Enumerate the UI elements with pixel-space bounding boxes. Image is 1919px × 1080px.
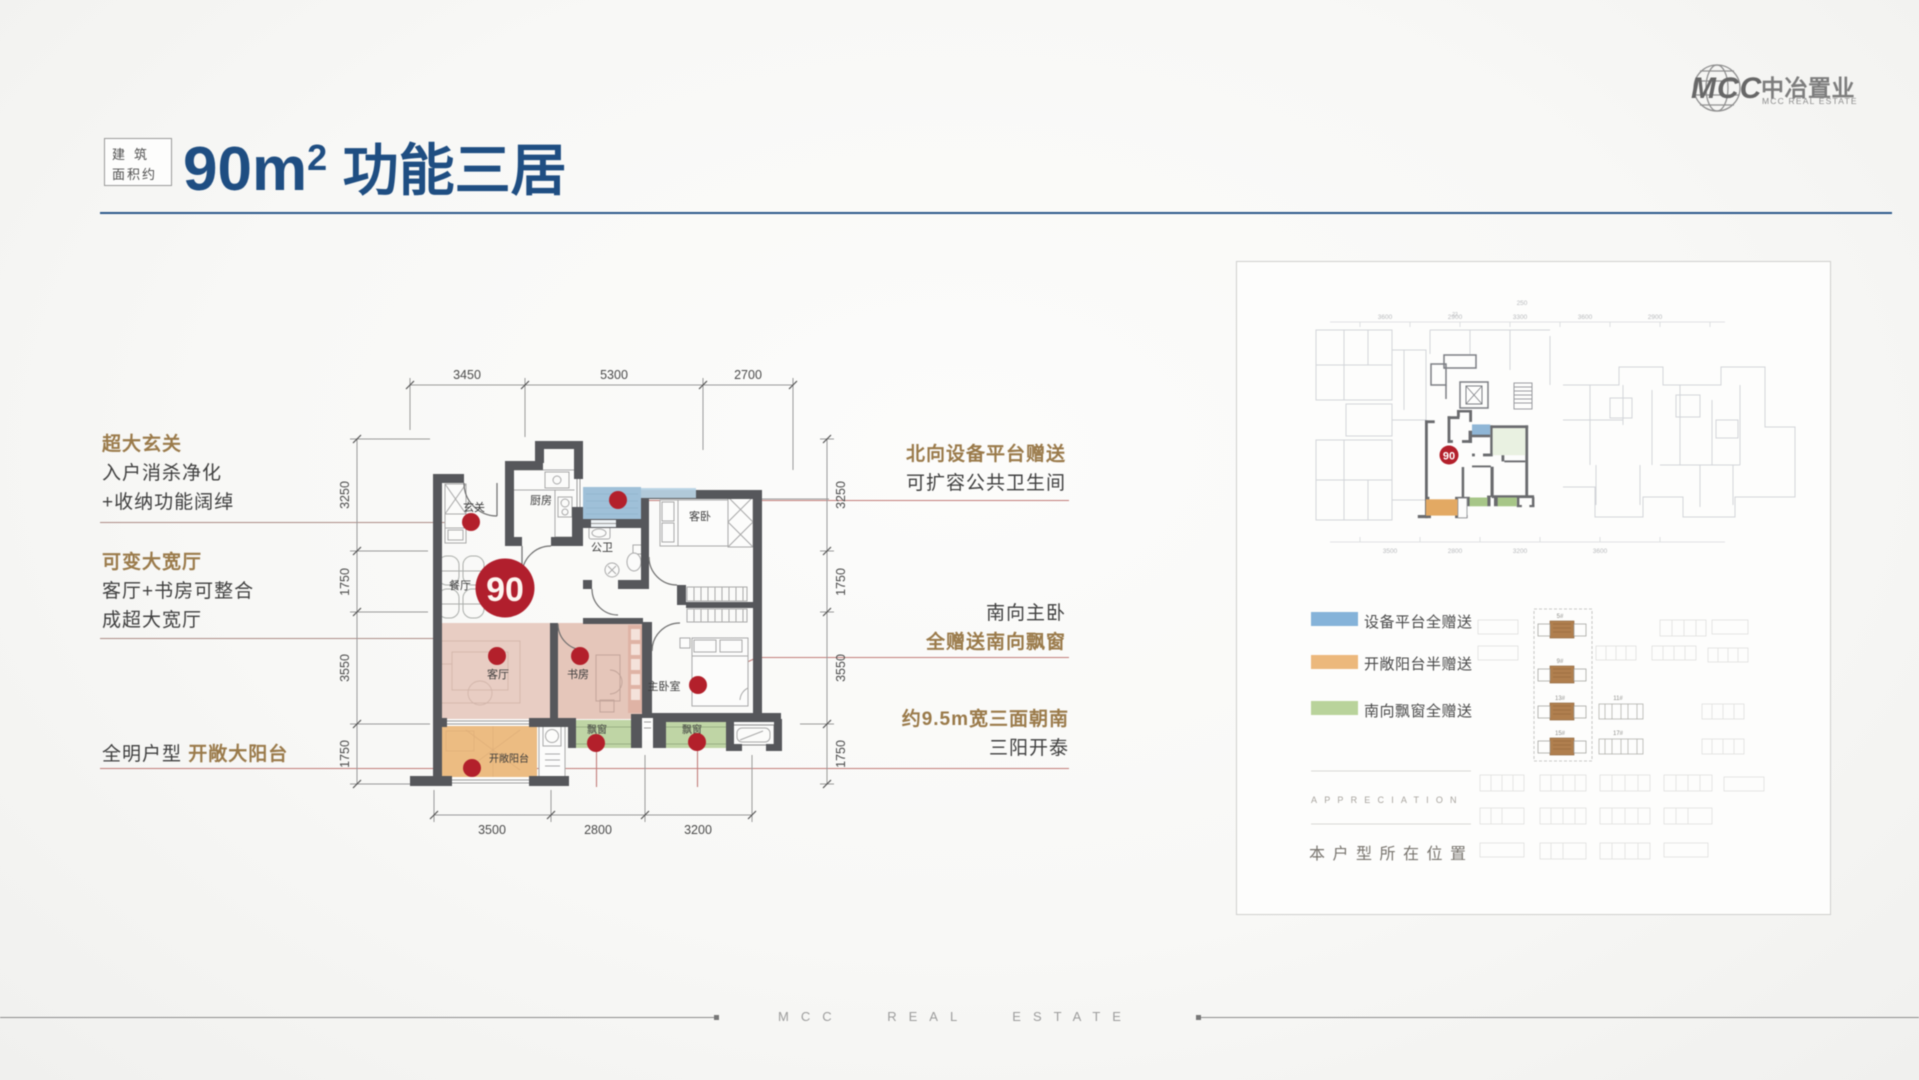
svg-text:3500: 3500	[1383, 548, 1398, 555]
svg-text:1750: 1750	[834, 568, 848, 596]
svg-text:开敞阳台: 开敞阳台	[489, 752, 529, 765]
svg-text:3250: 3250	[338, 481, 352, 509]
svg-text:5300: 5300	[600, 368, 628, 382]
svg-text:书房: 书房	[567, 668, 589, 681]
svg-text:3450: 3450	[453, 368, 481, 382]
svg-text:1750: 1750	[338, 568, 352, 596]
svg-text:玄关: 玄关	[463, 500, 485, 514]
svg-text:3550: 3550	[338, 654, 352, 682]
svg-text:主卧室: 主卧室	[648, 679, 681, 693]
svg-text:3550: 3550	[834, 654, 848, 682]
svg-text:厨房: 厨房	[530, 494, 552, 507]
svg-text:3200: 3200	[684, 823, 712, 837]
svg-text:3300: 3300	[1513, 314, 1528, 321]
svg-text:90: 90	[486, 571, 524, 609]
svg-text:1750: 1750	[338, 740, 352, 768]
svg-text:3600: 3600	[1593, 548, 1608, 555]
svg-text:公卫: 公卫	[591, 542, 613, 554]
svg-text:9#: 9#	[1557, 659, 1564, 665]
svg-text:客卧: 客卧	[689, 509, 711, 523]
svg-text:3200: 3200	[1513, 548, 1528, 555]
svg-text:250: 250	[1517, 300, 1528, 307]
svg-text:17#: 17#	[1613, 731, 1624, 737]
svg-text:餐厅: 餐厅	[449, 578, 471, 592]
svg-text:飘窗: 飘窗	[587, 723, 607, 736]
svg-text:3600: 3600	[1378, 314, 1393, 321]
svg-text:2700: 2700	[734, 368, 762, 382]
svg-text:客厅: 客厅	[487, 667, 509, 681]
svg-text:2900: 2900	[1648, 314, 1663, 321]
svg-text:5#: 5#	[1557, 614, 1564, 620]
svg-text:1750: 1750	[834, 740, 848, 768]
svg-text:13#: 13#	[1555, 696, 1566, 702]
svg-text:3500: 3500	[478, 823, 506, 837]
svg-text:15#: 15#	[1555, 731, 1566, 737]
svg-text:90: 90	[1443, 451, 1455, 463]
svg-text:3600: 3600	[1578, 314, 1593, 321]
svg-text:2800: 2800	[1448, 548, 1463, 555]
svg-text:3250: 3250	[834, 481, 848, 509]
svg-text:2800: 2800	[584, 823, 612, 837]
svg-text:22: 22	[1452, 312, 1458, 318]
svg-text:11#: 11#	[1613, 696, 1623, 702]
